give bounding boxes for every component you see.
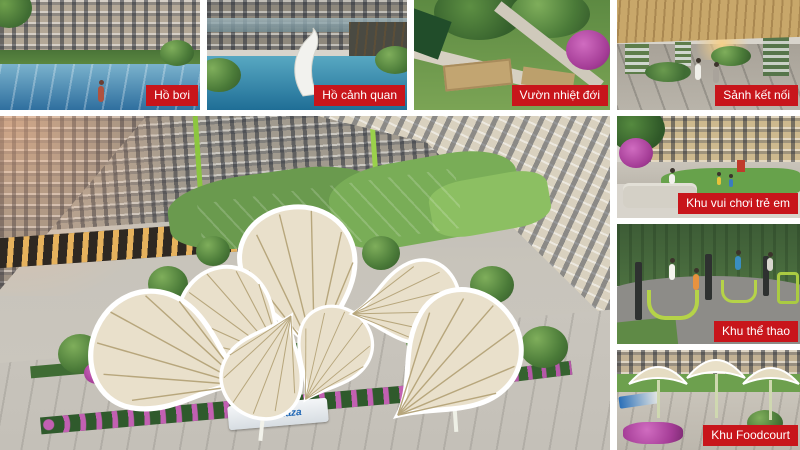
gym-frame-green-1 — [647, 290, 699, 320]
play-child-2 — [729, 174, 733, 187]
gym-post-dark-1 — [635, 262, 642, 320]
amenity-label-sports: Khu thể thao — [714, 321, 798, 342]
play-towers — [647, 116, 800, 168]
amenity-label-foodcourt: Khu Foodcourt — [703, 425, 798, 446]
lobby-person-2 — [713, 62, 719, 83]
photo-main-courtyard: FPT Plaza — [0, 116, 610, 450]
play-person-seated — [669, 168, 675, 184]
photo-playground: Khu vui chơi trẻ em — [617, 116, 800, 218]
brochure-collage: Hồ bơi Hồ cảnh quan Vườn nhiệt đới — [0, 0, 800, 450]
amenity-label-lobby: Sảnh kết nối — [715, 85, 798, 106]
play-equipment — [737, 160, 745, 172]
amenity-label-lake: Hồ cảnh quan — [314, 85, 405, 106]
amenity-label-pool: Hồ bơi — [146, 85, 198, 106]
lobby-planter — [645, 62, 691, 82]
photo-garden: Vườn nhiệt đới — [414, 0, 610, 110]
photo-sports: Khu thể thao — [617, 224, 800, 344]
pool-shrub — [160, 40, 194, 66]
sport-grass-edge — [617, 316, 678, 344]
gym-post-dark-2 — [705, 254, 712, 300]
play-bougainvillea — [619, 138, 653, 168]
lobby-person-1 — [695, 58, 701, 80]
sport-person-2 — [693, 268, 699, 290]
photo-pool: Hồ bơi — [0, 0, 200, 110]
swimmer-figure — [98, 80, 104, 102]
gym-frame-green-3 — [777, 272, 799, 304]
lobby-timber-ceiling — [617, 0, 800, 43]
photo-foodcourt: Khu Foodcourt — [617, 350, 800, 450]
garden-bougainvillea — [566, 30, 610, 70]
sport-person-3 — [735, 250, 741, 270]
play-child-1 — [717, 172, 721, 185]
photo-lobby: Sảnh kết nối — [617, 0, 800, 110]
lake-plants-right — [375, 46, 407, 74]
amenity-label-playground: Khu vui chơi trẻ em — [678, 193, 798, 214]
gym-frame-green-2 — [721, 280, 757, 303]
leaf-canopies — [0, 116, 610, 450]
sport-person-1 — [669, 258, 675, 280]
photo-lake: Hồ cảnh quan — [207, 0, 407, 110]
amenity-label-garden: Vườn nhiệt đới — [512, 85, 608, 106]
sport-person-4 — [767, 252, 773, 271]
